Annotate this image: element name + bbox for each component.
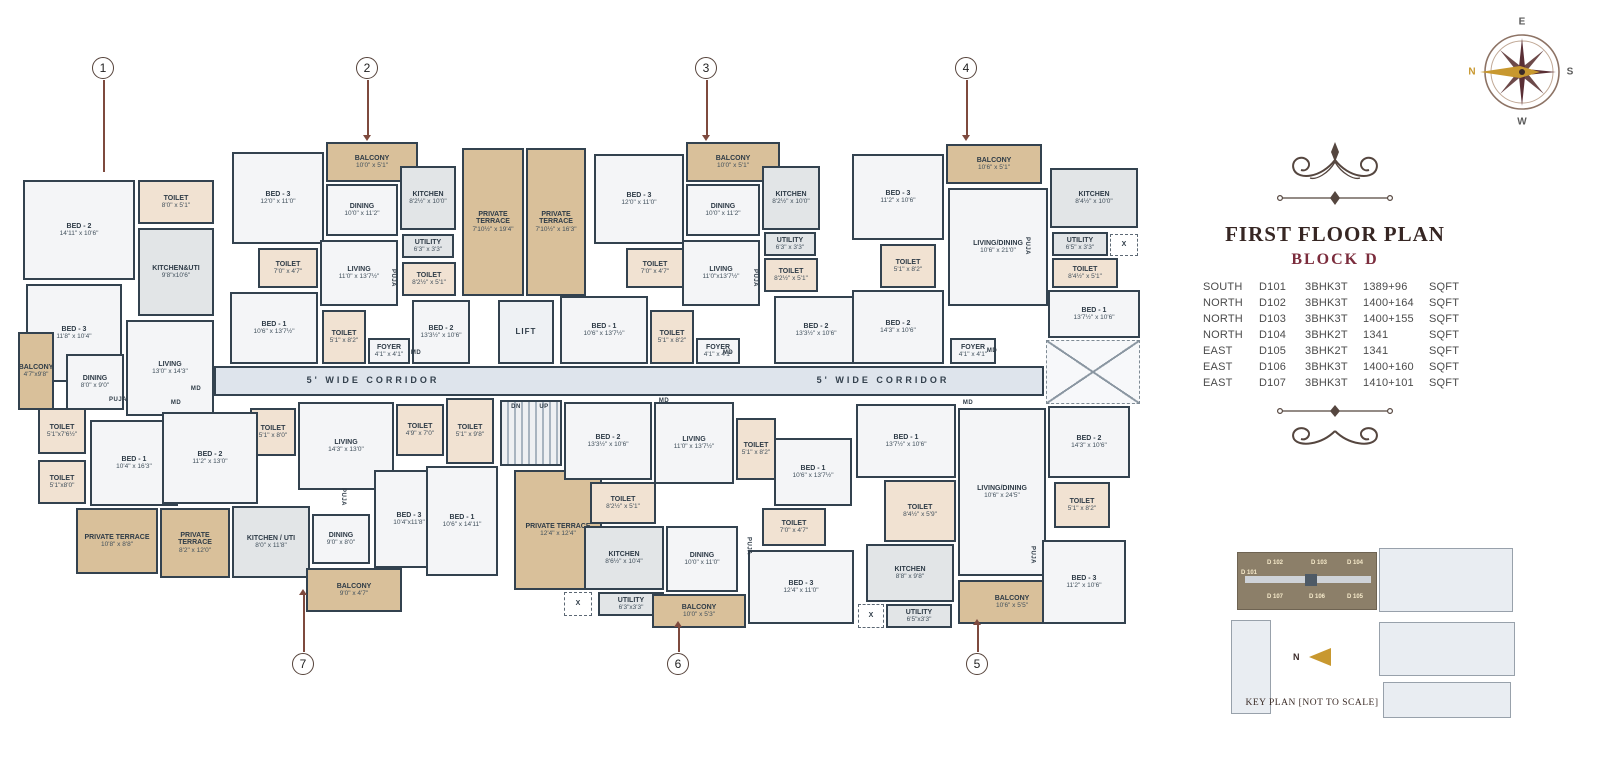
floor-plan: 5' WIDE CORRIDOR5' WIDE CORRIDORLIFTDNUP… [18, 140, 1140, 640]
5-wide-corridor: 5' WIDE CORRIDOR [758, 368, 1008, 394]
unit-table-cell: SQFT [1429, 281, 1467, 293]
private-terrace: PRIVATE TERRACE7'10½" x 19'4" [462, 148, 524, 296]
keyplan-north-arrow-icon [1309, 648, 1331, 666]
d106-dining: DINING10'0" x 11'0" [666, 526, 738, 592]
d107-md: MD [166, 398, 186, 408]
d103-bed-3: BED - 312'0" x 11'0" [594, 154, 684, 244]
d107-toilet: TOILET4'9" x 7'0" [396, 404, 444, 456]
unit-table-cell: 1400+164 [1363, 297, 1429, 309]
d105-toilet: TOILET8'4½" x 5'9" [884, 480, 956, 542]
d101-puja: PUJA [100, 394, 136, 406]
plan-subtitle: BLOCK D [1200, 251, 1470, 269]
unit-marker-4: 4 [955, 57, 977, 79]
unit-marker-7: 7 [292, 653, 314, 675]
unit-table-cell: SQFT [1429, 329, 1467, 341]
unit-table-cell: 3BHK3T [1305, 297, 1363, 309]
unit-table-row-d104: NORTHD1043BHK2T1341SQFT [1203, 329, 1467, 341]
unit-table-cell: D103 [1259, 313, 1305, 325]
unit-table-cell: EAST [1203, 345, 1259, 357]
d101-balcony: BALCONY4'7"x9'8" [18, 332, 54, 410]
unit-table-cell: 3BHK3T [1305, 313, 1363, 325]
compass-rose-icon [1462, 12, 1582, 132]
d106-bed-3: BED - 312'4" x 11'0" [748, 550, 854, 624]
unit-table-cell: NORTH [1203, 297, 1259, 309]
unit-marker-line-3 [706, 80, 708, 136]
d103-md: MD [718, 348, 738, 358]
unit-marker-line-5 [977, 624, 979, 652]
d102-toilet: TOILET5'1" x 8'2" [322, 310, 366, 364]
d104-kitchen: KITCHEN8'4½" x 10'0" [1050, 168, 1138, 228]
d102-puja: PUJA [386, 262, 400, 294]
keyplan-lift [1305, 574, 1317, 586]
unit-table-cell: 1389+96 [1363, 281, 1429, 293]
unit-table-cell: EAST [1203, 361, 1259, 373]
ornament-bottom-icon [1270, 403, 1400, 465]
d104-puja: PUJA [1020, 230, 1034, 262]
keyplan-wing-middle [1379, 622, 1515, 676]
unit-table-cell: D107 [1259, 377, 1305, 389]
unit-table-cell: 3BHK3T [1305, 377, 1363, 389]
keyplan-unit-d106: D 106 [1309, 594, 1325, 600]
unit-marker-line-6 [678, 626, 680, 652]
unit-table-cell: SQFT [1429, 345, 1467, 357]
keyplan-unit-d104: D 104 [1347, 560, 1363, 566]
d105-md: MD [958, 398, 978, 408]
d104-bed-1: BED - 113'7½" x 10'6" [1048, 290, 1140, 338]
unit-table-row-d103: NORTHD1033BHK3T1400+155SQFT [1203, 313, 1467, 325]
keyplan-wing-top [1379, 548, 1513, 612]
d107-puja: PUJA [336, 480, 350, 514]
d106-living: LIVING11'0" x 13'7½" [654, 402, 734, 484]
page: { "colors":{"wall":"#33424f","floor":"#f… [0, 0, 1600, 772]
d104-bed-2: BED - 214'3" x 10'6" [852, 290, 944, 364]
d105-x: X [858, 604, 884, 628]
unit-table-cell: SQFT [1429, 377, 1467, 389]
unit-table-cell: D102 [1259, 297, 1305, 309]
keyplan-caption: KEY PLAN [NOT TO SCALE] [1205, 698, 1419, 708]
dn: DN [504, 402, 528, 412]
d103-puja: PUJA [748, 262, 762, 294]
5-wide-corridor: 5' WIDE CORRIDOR [248, 368, 498, 394]
compass: E S W N [1462, 12, 1582, 132]
d102-toilet: TOILET8'2½" x 5'1" [402, 262, 456, 296]
d101-toilet: TOILET8'0" x 5'1" [138, 180, 214, 224]
arrow-icon [674, 621, 682, 627]
d101-private-terrace: PRIVATE TERRACE10'8" x 8'8" [76, 508, 158, 574]
unit-marker-1: 1 [92, 57, 114, 79]
d106-puja: PUJA [742, 530, 755, 562]
unit-marker-line-1 [103, 80, 105, 172]
d105-puja: PUJA [1026, 538, 1039, 572]
d106-toilet: TOILET7'0" x 4'7" [762, 508, 826, 546]
d102-md: MD [406, 348, 426, 358]
d102-dining: DINING10'0" x 11'2" [326, 184, 398, 236]
unit-table-cell: 3BHK3T [1305, 361, 1363, 373]
d105-bed-2: BED - 214'3" x 10'6" [1048, 406, 1130, 478]
d101-kitchen-uti: KITCHEN&UTI9'8"x10'6" [138, 228, 214, 316]
d102-kitchen: KITCHEN8'2½" x 10'0" [400, 166, 456, 230]
unit-marker-6: 6 [667, 653, 689, 675]
d105-bed-3: BED - 311'2" x 10'6" [1042, 540, 1126, 624]
d107-private-terrace: PRIVATE TERRACE8'2" x 12'0" [160, 508, 230, 578]
d102-bed-1: BED - 110'6" x 13'7½" [230, 292, 318, 364]
arrow-icon [299, 589, 307, 595]
unit-table-row-d101: SOUTHD1013BHK3T1389+96SQFT [1203, 281, 1467, 293]
d104-toilet: TOILET8'4½" x 5'1" [1052, 258, 1118, 288]
unit-table-cell: NORTH [1203, 329, 1259, 341]
unit-table-cell: EAST [1203, 377, 1259, 389]
unit-table-cell: D101 [1259, 281, 1305, 293]
d103-toilet: TOILET8'2½" x 5'1" [764, 258, 818, 292]
d103-utility: UTILITY6'3" x 3'3" [764, 232, 816, 256]
unit-table-cell: SQFT [1429, 297, 1467, 309]
d106-x: X [564, 592, 592, 616]
d101-bed-2: BED - 214'11" x 10'6" [23, 180, 135, 280]
lift: LIFT [498, 300, 554, 364]
d106-balcony: BALCONY10'0" x 5'3" [652, 594, 746, 628]
d101-toilet: TOILET5'1"x7'6½" [38, 408, 86, 454]
unit-table-cell: 3BHK2T [1305, 345, 1363, 357]
unit-marker-2: 2 [356, 57, 378, 79]
compass-north-label: N [1468, 67, 1475, 78]
keyplan: D 101D 102D 103D 104D 107D 106D 105 N KE… [1205, 530, 1535, 730]
d106-toilet: TOILET5'1" x 8'2" [736, 418, 776, 480]
unit-table-cell: D106 [1259, 361, 1305, 373]
d103-toilet: TOILET7'0" x 4'7" [626, 248, 684, 288]
unit-table-cell: 1400+155 [1363, 313, 1429, 325]
arrow-icon [973, 619, 981, 625]
d106-kitchen: KITCHEN8'6½" x 10'4" [584, 526, 664, 590]
up: UP [532, 402, 556, 412]
unit-table-row-d105: EASTD1053BHK2T1341SQFT [1203, 345, 1467, 357]
arrow-icon [702, 135, 710, 141]
d107-dining: DINING9'0" x 8'0" [312, 514, 370, 564]
keyplan-unit-d103: D 103 [1311, 560, 1327, 566]
keyplan-unit-d105: D 105 [1347, 594, 1363, 600]
arrow-icon [363, 135, 371, 141]
d102-toilet: TOILET7'0" x 4'7" [258, 248, 318, 288]
d107-kitchen-uti: KITCHEN / UTI8'0" x 11'8" [232, 506, 310, 578]
d102-foyer: FOYER4'1" x 4'1" [368, 338, 410, 364]
unit-marker-line-4 [966, 80, 968, 136]
d107-bed-1: BED - 110'6" x 14'11" [426, 466, 498, 576]
unit-table: SOUTHD1013BHK3T1389+96SQFTNORTHD1023BHK3… [1203, 281, 1467, 389]
d103-toilet: TOILET5'1" x 8'2" [650, 310, 694, 364]
d106-toilet: TOILET8'2½" x 5'1" [590, 482, 656, 524]
compass-east-label: E [1519, 17, 1526, 28]
unit-table-cell: 1341 [1363, 329, 1429, 341]
d107-balcony: BALCONY9'0" x 4'7" [306, 568, 402, 612]
d105-toilet: TOILET5'1" x 8'2" [1054, 482, 1110, 528]
d104-balcony: BALCONY10'6" x 5'1" [946, 144, 1042, 184]
unit-table-cell: SQFT [1429, 361, 1467, 373]
unit-table-cell: 1410+101 [1363, 377, 1429, 389]
d101-md: MD [186, 384, 206, 394]
unit-table-cell: D104 [1259, 329, 1305, 341]
unit-table-cell: D105 [1259, 345, 1305, 357]
keyplan-unit-d107: D 107 [1267, 594, 1283, 600]
hatch [1046, 340, 1140, 404]
compass-south-label: S [1567, 67, 1574, 78]
keyplan-unit-d102: D 102 [1267, 560, 1283, 566]
d104-x: X [1110, 234, 1138, 256]
d103-dining: DINING10'0" x 11'2" [686, 184, 760, 236]
unit-table-cell: SOUTH [1203, 281, 1259, 293]
unit-table-row-d107: EASTD1073BHK3T1410+101SQFT [1203, 377, 1467, 389]
compass-west-label: W [1517, 117, 1526, 128]
d102-utility: UTILITY6'3" x 3'3" [402, 234, 454, 258]
arrow-icon [962, 135, 970, 141]
legend-panel: FIRST FLOOR PLAN BLOCK D SOUTHD1013BHK3T… [1200, 140, 1470, 465]
private-terrace: PRIVATE TERRACE7'10½" x 16'3" [526, 148, 586, 296]
unit-table-cell: 1400+160 [1363, 361, 1429, 373]
keyplan-north-label: N [1293, 652, 1300, 662]
d103-bed-2: BED - 213'3½" x 10'6" [774, 296, 858, 364]
d103-bed-1: BED - 110'6" x 13'7½" [560, 296, 648, 364]
unit-marker-line-7 [303, 594, 305, 652]
unit-marker-5: 5 [966, 653, 988, 675]
d106-bed-1: BED - 110'6" x 13'7½" [774, 438, 852, 506]
unit-marker-3: 3 [695, 57, 717, 79]
unit-table-row-d102: NORTHD1023BHK3T1400+164SQFT [1203, 297, 1467, 309]
d105-bed-1: BED - 113'7½" x 10'6" [856, 404, 956, 478]
unit-table-cell: 1341 [1363, 345, 1429, 357]
d101-toilet: TOILET5'1"x8'0" [38, 460, 86, 504]
unit-table-cell: NORTH [1203, 313, 1259, 325]
unit-marker-line-2 [367, 80, 369, 136]
d105-utility: UTILITY6'5"x3'3" [886, 604, 952, 628]
unit-table-row-d106: EASTD1063BHK3T1400+160SQFT [1203, 361, 1467, 373]
d104-bed-3: BED - 311'2" x 10'6" [852, 154, 944, 240]
d104-utility: UTILITY6'5" x 3'3" [1052, 232, 1108, 256]
d106-md: MD [654, 396, 674, 406]
d107-bed-2: BED - 211'2" x 13'0" [162, 412, 258, 504]
unit-table-cell: SQFT [1429, 313, 1467, 325]
d106-bed-2: BED - 213'3½" x 10'6" [564, 402, 652, 480]
unit-table-cell: 3BHK2T [1305, 329, 1363, 341]
d105-kitchen: KITCHEN8'8" x 9'8" [866, 544, 954, 602]
plan-title: FIRST FLOOR PLAN [1200, 222, 1470, 247]
d103-kitchen: KITCHEN8'2½" x 10'0" [762, 166, 820, 230]
d104-md: MD [982, 346, 1002, 356]
d102-bed-3: BED - 312'0" x 11'0" [232, 152, 324, 244]
d107-toilet: TOILET5'1" x 9'8" [446, 398, 494, 464]
keyplan-unit-d101: D 101 [1241, 570, 1257, 576]
d104-toilet: TOILET5'1" x 8'2" [880, 244, 936, 288]
unit-table-cell: 3BHK3T [1305, 281, 1363, 293]
ornament-top-icon [1270, 140, 1400, 214]
